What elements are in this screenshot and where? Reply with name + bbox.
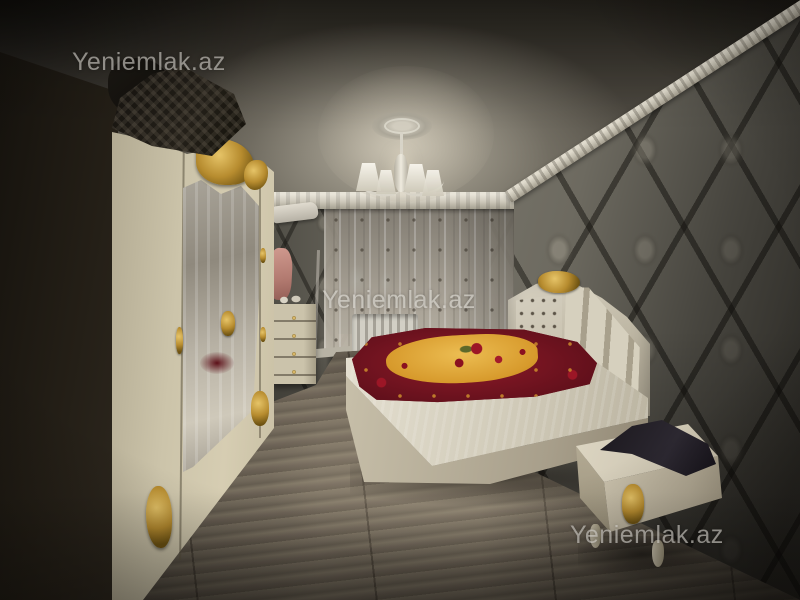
watermark-top-left: Yeniemlak.az xyxy=(72,48,226,77)
items-on-dresser xyxy=(276,293,304,305)
wardrobe-handle xyxy=(176,327,183,354)
wardrobe-handle xyxy=(260,327,266,342)
wardrobe-gold-ornament xyxy=(146,486,172,548)
watermark-center: Yeniemlak.az xyxy=(322,286,476,315)
mirror-reflection-blanket xyxy=(200,352,234,374)
watermark-bottom-right: Yeniemlak.az xyxy=(570,521,724,550)
headboard-gold-crest xyxy=(538,271,580,293)
wardrobe-handle xyxy=(260,248,266,263)
chest-of-drawers xyxy=(272,304,316,384)
wardrobe-side-panel xyxy=(0,52,118,600)
wardrobe-mirror-handle xyxy=(221,311,235,336)
bench-gold-ornament xyxy=(622,484,644,524)
bedside-bench xyxy=(570,418,730,588)
wardrobe-gold-ornament xyxy=(251,391,269,426)
bedroom-photo: Yeniemlak.az Yeniemlak.az Yeniemlak.az xyxy=(0,0,800,600)
